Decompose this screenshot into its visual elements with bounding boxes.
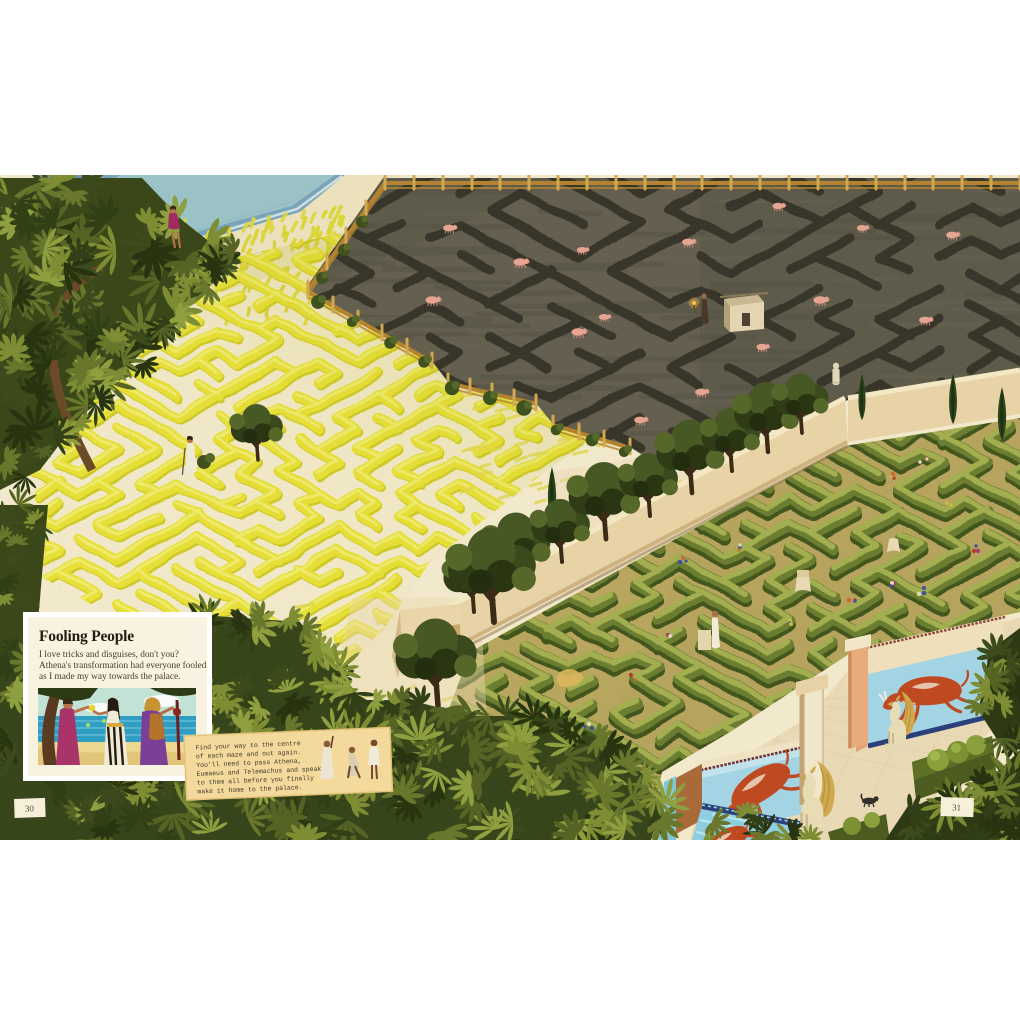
svg-text:Fooling People: Fooling People bbox=[39, 628, 134, 645]
svg-text:30: 30 bbox=[25, 803, 35, 813]
svg-text:Athena's transformation had ev: Athena's transformation had everyone foo… bbox=[39, 660, 207, 671]
svg-text:as I made my way towards the p: as I made my way towards the palace. bbox=[39, 672, 180, 682]
svg-text:31: 31 bbox=[952, 802, 961, 812]
svg-text:I love tricks and disguises, d: I love tricks and disguises, don't you? bbox=[39, 650, 179, 660]
